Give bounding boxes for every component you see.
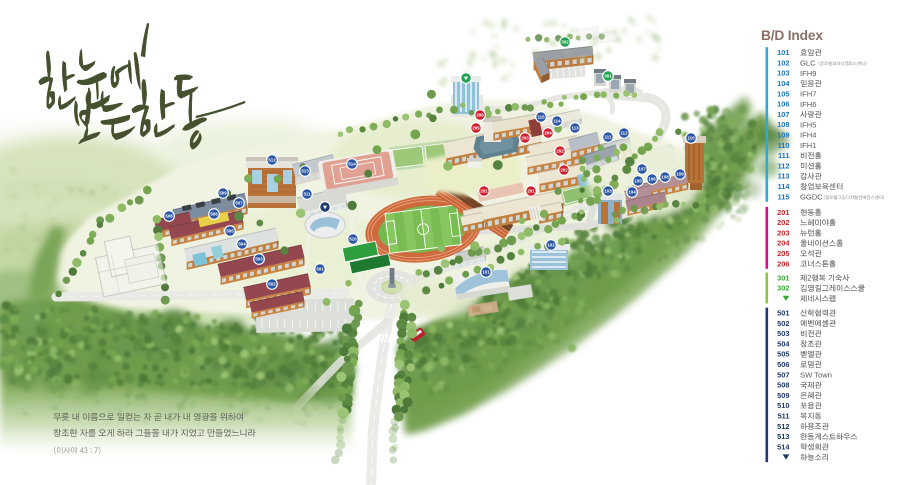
svg-text:203: 203: [777, 228, 789, 237]
svg-text:115: 115: [778, 192, 790, 201]
svg-text:IFH7: IFH7: [800, 90, 816, 99]
svg-text:511: 511: [778, 412, 790, 421]
svg-text:509: 509: [777, 391, 789, 400]
svg-text:508: 508: [165, 214, 173, 219]
svg-text:513: 513: [301, 169, 309, 174]
svg-text:204: 204: [777, 239, 790, 248]
svg-text:203: 203: [521, 136, 529, 141]
svg-text:508: 508: [777, 381, 789, 390]
svg-text:110: 110: [687, 136, 695, 141]
svg-text:107: 107: [777, 110, 789, 119]
svg-text:111: 111: [778, 151, 790, 160]
svg-text:514: 514: [777, 442, 790, 451]
svg-text:GGDC: GGDC: [800, 193, 823, 202]
svg-text:206: 206: [777, 259, 789, 268]
svg-text:113: 113: [571, 126, 579, 131]
svg-text:IFH9: IFH9: [800, 69, 816, 78]
svg-text:506: 506: [210, 212, 218, 217]
svg-text:201: 201: [480, 189, 488, 194]
svg-text:204: 204: [544, 131, 552, 136]
svg-text:505: 505: [777, 350, 789, 359]
svg-text:B/D Index: B/D Index: [761, 28, 823, 43]
svg-text:512: 512: [777, 422, 789, 431]
svg-text:IFH6: IFH6: [800, 100, 816, 109]
svg-text:514: 514: [348, 162, 356, 167]
svg-text:512: 512: [268, 158, 276, 163]
svg-text:104: 104: [777, 79, 790, 88]
svg-text:504: 504: [777, 339, 790, 348]
svg-text:104: 104: [628, 190, 636, 195]
svg-text:202: 202: [556, 149, 564, 154]
svg-text:507: 507: [235, 201, 243, 206]
svg-text:112: 112: [620, 131, 628, 136]
svg-text:301: 301: [604, 74, 612, 79]
svg-text:105: 105: [777, 89, 789, 98]
svg-text:114: 114: [778, 182, 791, 191]
svg-text:509: 509: [219, 191, 227, 196]
svg-text:101: 101: [482, 270, 490, 275]
svg-text:108: 108: [777, 120, 789, 129]
svg-text:105: 105: [634, 179, 642, 184]
svg-text:GLC: GLC: [800, 59, 816, 68]
svg-text:507: 507: [777, 370, 789, 379]
svg-text:513: 513: [777, 432, 789, 441]
svg-text:106: 106: [648, 177, 656, 182]
svg-text:109: 109: [777, 131, 789, 140]
svg-text:201: 201: [527, 189, 535, 194]
svg-text:205: 205: [472, 126, 480, 131]
svg-text:107: 107: [638, 167, 646, 172]
svg-text:113: 113: [778, 172, 790, 181]
svg-text:302: 302: [777, 284, 789, 293]
svg-text:IFH5: IFH5: [800, 120, 816, 129]
svg-text:SW Town: SW Town: [800, 371, 832, 380]
svg-text:115: 115: [537, 115, 545, 120]
svg-text:108: 108: [661, 175, 669, 180]
svg-text:201: 201: [777, 208, 789, 217]
svg-text:202: 202: [560, 168, 568, 173]
svg-text:111: 111: [605, 135, 612, 140]
svg-text:510: 510: [777, 401, 789, 410]
svg-text:101: 101: [777, 48, 789, 57]
svg-text:503: 503: [777, 329, 789, 338]
svg-text:206: 206: [476, 113, 484, 118]
svg-text:103: 103: [604, 189, 612, 194]
svg-text:504: 504: [238, 242, 246, 247]
svg-text:511: 511: [303, 192, 311, 197]
svg-text:202: 202: [777, 218, 789, 227]
svg-text:112: 112: [778, 161, 790, 170]
svg-text:302: 302: [561, 40, 569, 45]
svg-text:506: 506: [777, 360, 789, 369]
svg-text:510: 510: [349, 237, 357, 242]
svg-text:503: 503: [255, 257, 263, 262]
svg-text:IFH1: IFH1: [800, 141, 816, 150]
svg-text:103: 103: [777, 69, 789, 78]
svg-text:502: 502: [777, 319, 789, 328]
svg-text:IFH4: IFH4: [800, 131, 816, 140]
svg-text:110: 110: [778, 141, 790, 150]
svg-text:502: 502: [268, 282, 276, 287]
svg-text:106: 106: [777, 100, 789, 109]
svg-text:501: 501: [316, 267, 324, 272]
svg-text:114: 114: [553, 119, 561, 124]
svg-text:102: 102: [777, 58, 789, 67]
svg-text:102: 102: [547, 243, 555, 248]
svg-text:501: 501: [777, 309, 789, 318]
svg-text:205: 205: [777, 249, 789, 258]
svg-text:109: 109: [676, 172, 684, 177]
svg-text:505: 505: [226, 229, 234, 234]
svg-text:301: 301: [777, 273, 789, 282]
